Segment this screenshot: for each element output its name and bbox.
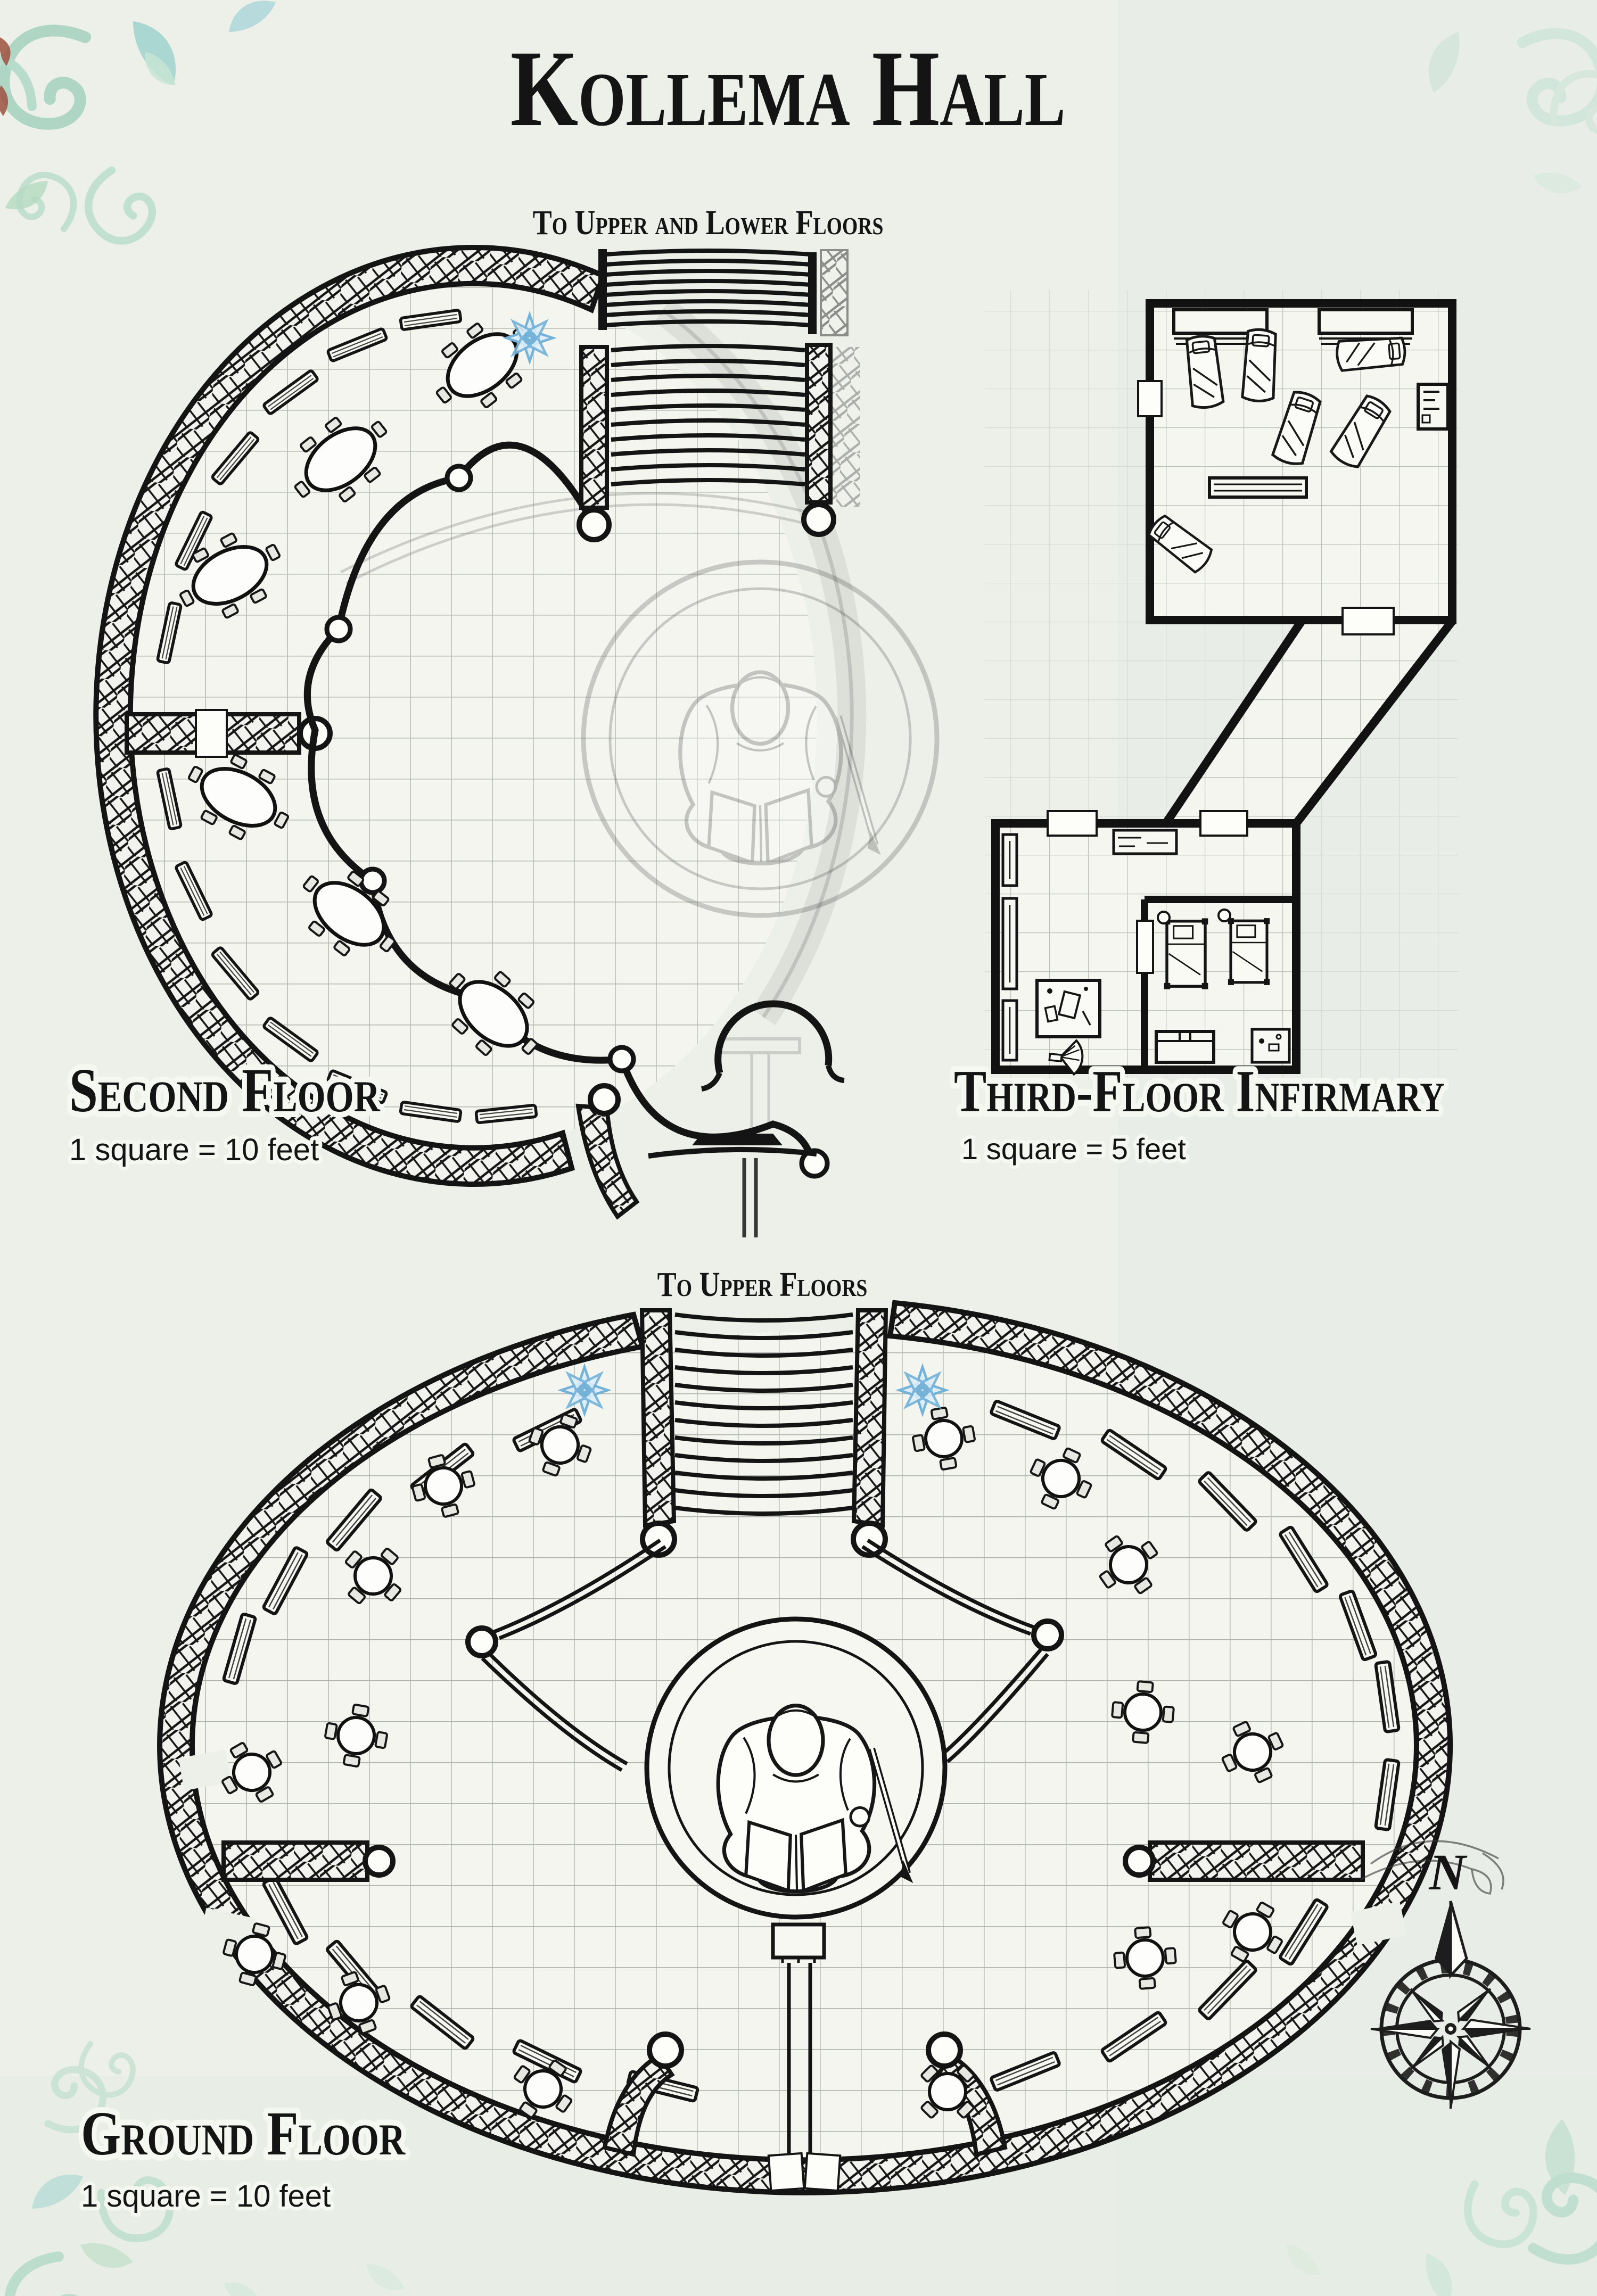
second-floor-scale-note: 1 square = 10 feet: [69, 1133, 319, 1167]
compass-north-label: N: [1428, 1844, 1468, 1901]
pedestal: [773, 1925, 824, 1958]
infirmary-upper-room: [1138, 303, 1452, 634]
page-title: Kollema Hall: [511, 29, 1066, 149]
second-floor-stairs-label: To Upper and Lower Floors: [533, 203, 884, 242]
door: [1048, 811, 1097, 836]
bench: [1209, 478, 1306, 497]
door: [769, 2153, 804, 2191]
bedroll: [1336, 337, 1406, 371]
railing-post: [468, 1628, 496, 1656]
bed: [1228, 918, 1270, 985]
map-handout-page: Kollema Hall: [0, 0, 1597, 2296]
ground-floor-title: Ground Floor: [81, 2099, 406, 2168]
desk: [1037, 980, 1100, 1037]
bed: [1164, 918, 1208, 989]
newel-post: [928, 2034, 960, 2066]
stair-post: [642, 1310, 674, 1525]
railing-post: [1034, 1621, 1061, 1649]
infirmary-title: Third-Floor Infirmary: [954, 1059, 1445, 1125]
page-title-text: Kollema Hall: [511, 29, 1066, 149]
window: [1138, 381, 1162, 416]
door: [1137, 921, 1153, 973]
door: [1200, 811, 1247, 836]
ground-floor-stairs-label: To Upper Floors: [657, 1265, 868, 1304]
stool: [1158, 912, 1170, 923]
newel-post: [361, 869, 384, 893]
side-table: [1252, 1029, 1289, 1062]
cabinet: [1418, 384, 1448, 429]
ground-floor-scale-note: 1 square = 10 feet: [81, 2179, 331, 2214]
chest: [1156, 1031, 1214, 1062]
second-floor-title: Second Floor: [69, 1056, 381, 1125]
table: [1114, 830, 1176, 854]
stair-post: [854, 1310, 886, 1525]
door: [196, 710, 227, 757]
newel-post: [610, 1047, 633, 1071]
newel-post: [579, 510, 609, 540]
infirmary-scale-note: 1 square = 5 feet: [961, 1132, 1186, 1166]
infirmary-plan: Third-Floor Infirmary 1 square = 5 feet: [954, 290, 1459, 1166]
newel-post: [447, 466, 471, 490]
door: [1343, 608, 1394, 634]
newel-post: [649, 2034, 681, 2066]
newel-post: [804, 505, 834, 534]
stool: [1219, 910, 1230, 921]
newel-post: [327, 617, 350, 641]
newel-post: [1125, 1847, 1153, 1875]
stair-post: [807, 345, 830, 502]
newel-post: [590, 1086, 618, 1113]
door: [805, 2153, 840, 2191]
infirmary-lower-room: [995, 811, 1296, 1081]
kollema-hall-map: Kollema Hall: [0, 0, 1597, 2296]
faded-wall-stub: [833, 347, 860, 507]
faded-wall-stub: [821, 250, 847, 335]
newel-post: [365, 1847, 393, 1875]
stair-post: [581, 347, 607, 508]
bedroll: [1242, 329, 1278, 402]
second-floor-door-spur: [127, 710, 330, 757]
statue-of-reading-figure: [647, 1619, 945, 1917]
